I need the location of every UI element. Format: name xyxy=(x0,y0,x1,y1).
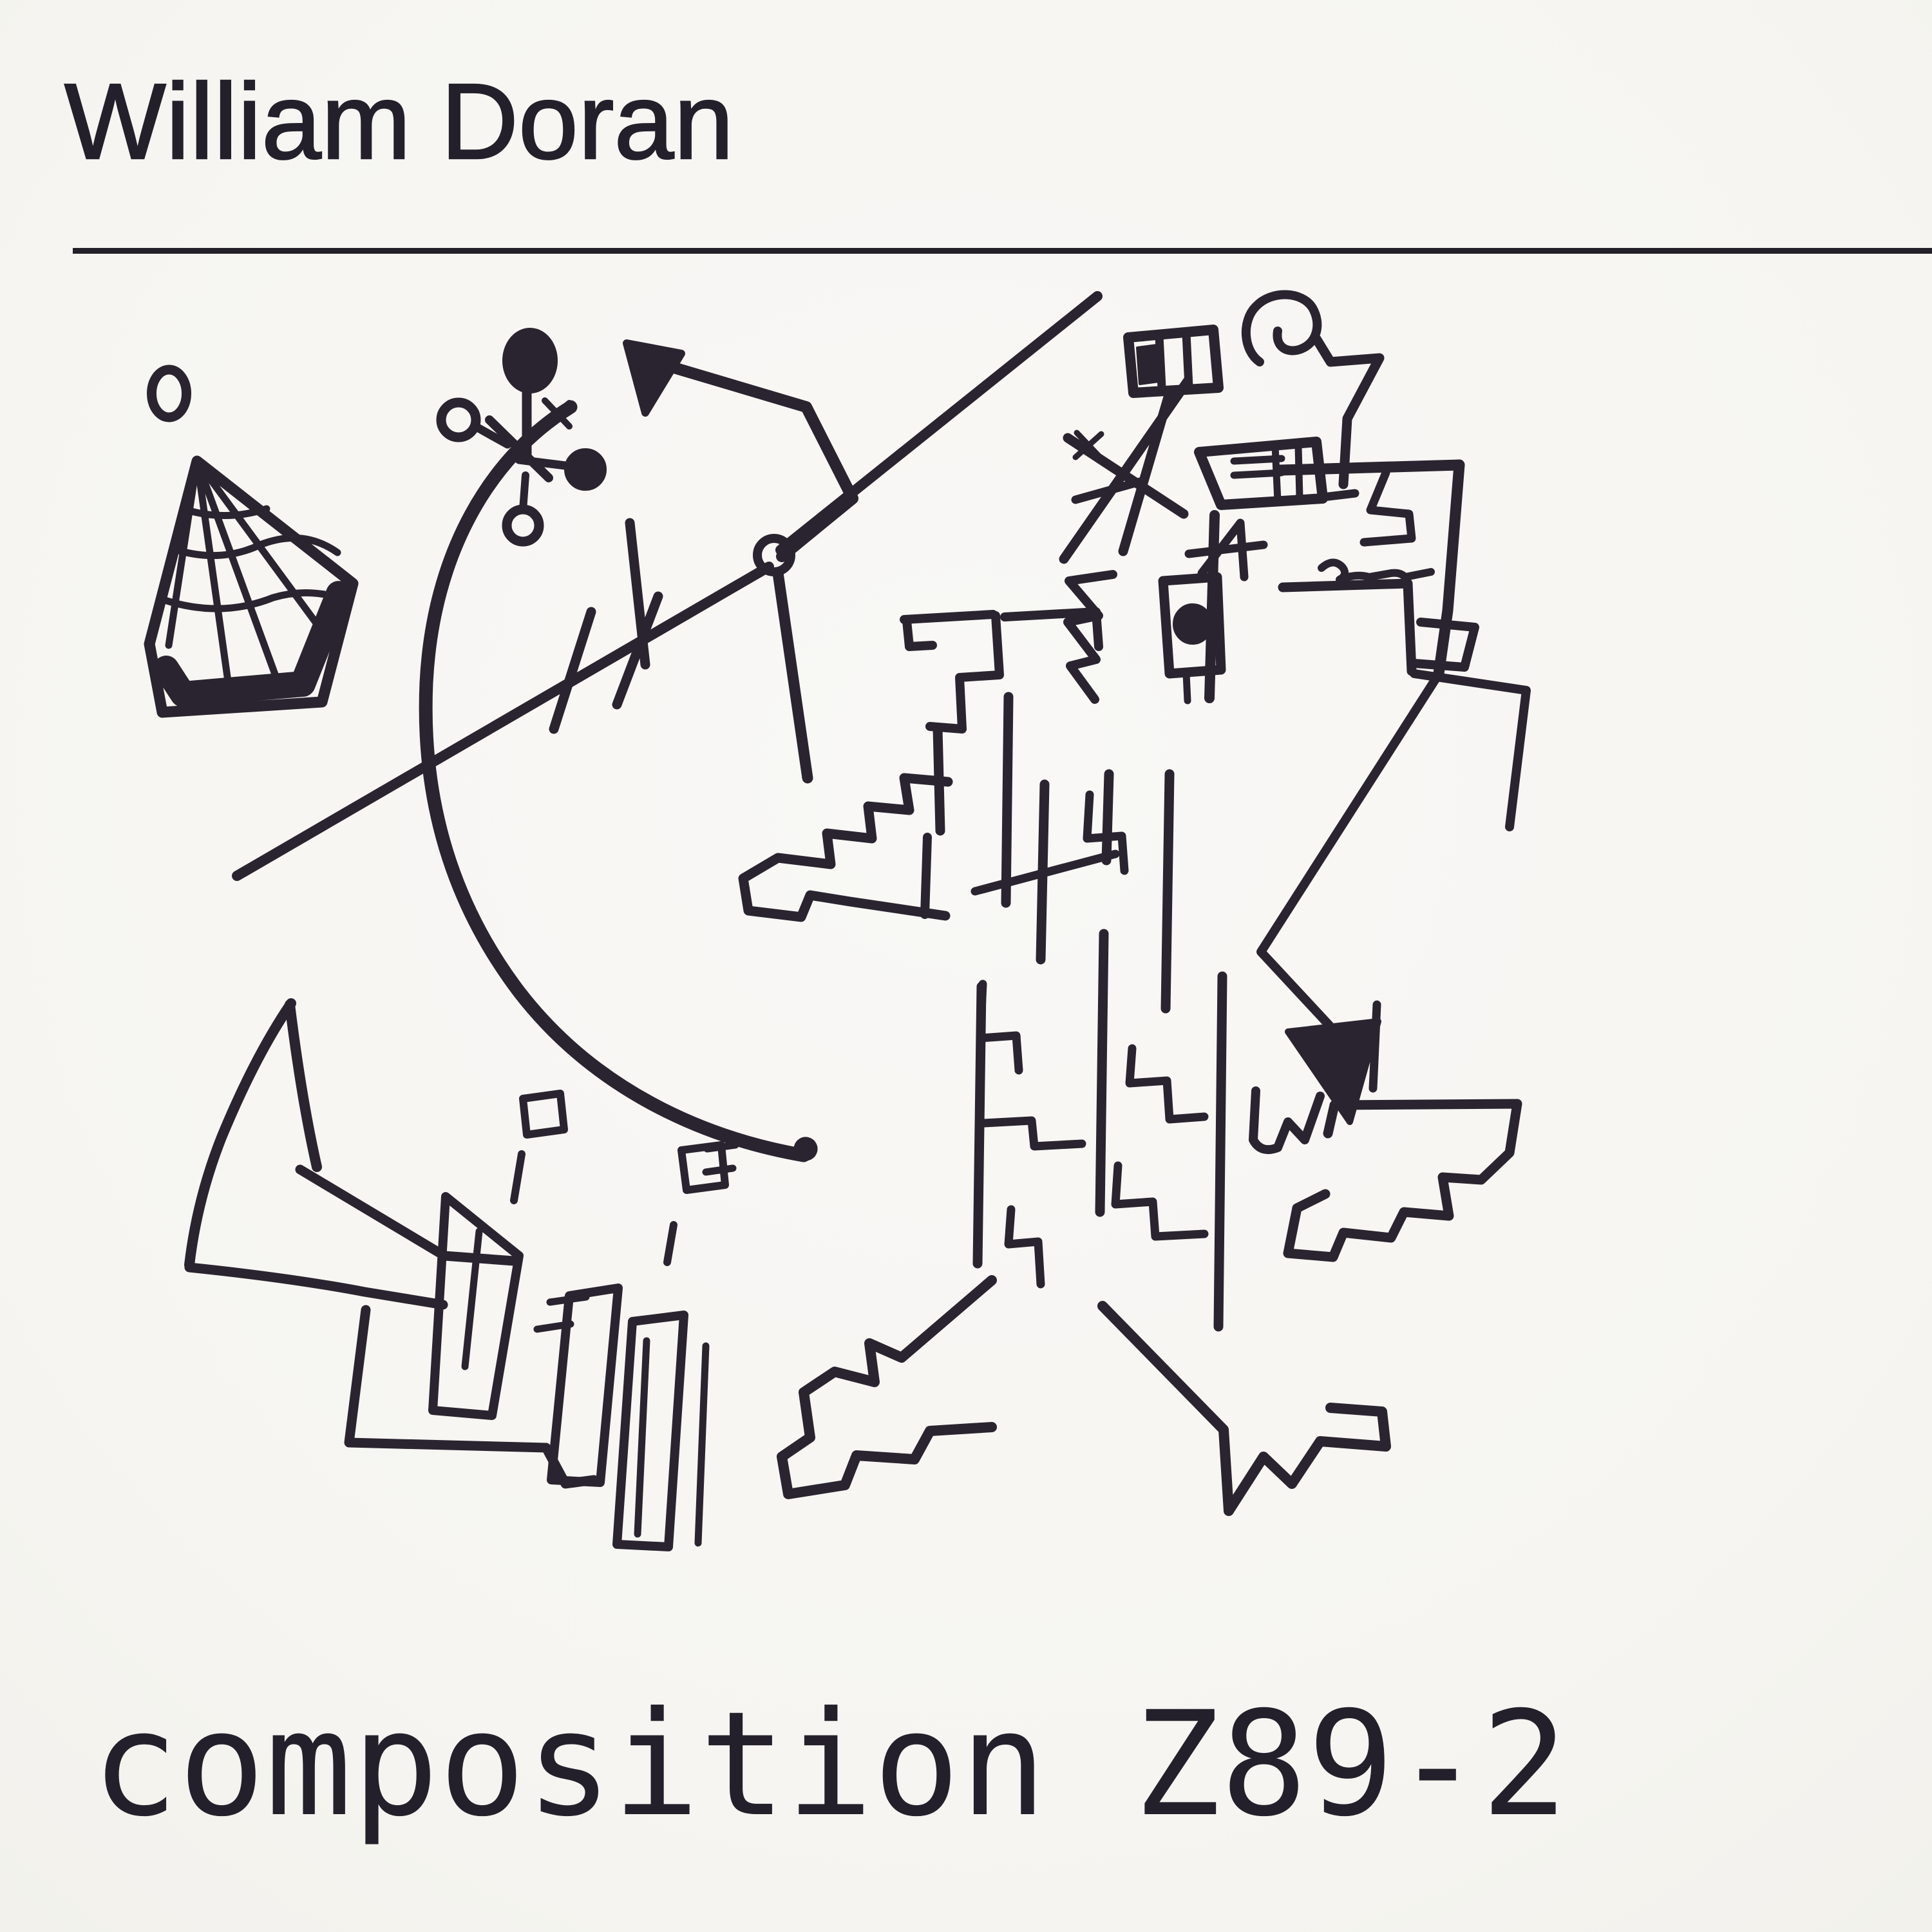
ink-stroke-93 xyxy=(465,1231,479,1367)
ink-stroke-8 xyxy=(165,592,343,609)
ink-stroke-40 xyxy=(1246,294,1317,362)
ink-stroke-80 xyxy=(1130,1048,1204,1119)
ink-stroke-69 xyxy=(938,729,940,831)
ink-stroke-88 xyxy=(189,1003,291,1265)
ink-stroke-102 xyxy=(537,1297,586,1329)
ink-stroke-51 xyxy=(1186,674,1188,701)
ink-stroke-91 xyxy=(300,1170,514,1261)
ink-stroke-25 xyxy=(781,296,1097,550)
ink-stroke-9 xyxy=(187,509,267,516)
ink-stroke-87 xyxy=(1229,1408,1386,1511)
ink-stroke-59 xyxy=(1414,674,1526,827)
ink-stroke-18 xyxy=(507,509,539,542)
ink-stroke-19 xyxy=(523,475,526,510)
ink-stroke-10 xyxy=(507,332,553,389)
ink-stroke-50 xyxy=(1175,605,1211,643)
ink-stroke-79 xyxy=(980,984,1019,1070)
ink-stroke-83 xyxy=(1009,1209,1041,1284)
ink-stroke-62 xyxy=(1373,1005,1377,1088)
ink-stroke-85 xyxy=(782,1280,992,1494)
ink-stroke-81 xyxy=(1115,1166,1204,1236)
ink-stroke-74 xyxy=(1166,774,1170,1009)
ink-stroke-24 xyxy=(237,567,769,876)
ink-stroke-34 xyxy=(1137,345,1159,384)
ink-stroke-90 xyxy=(189,1267,443,1305)
ink-stroke-98 xyxy=(523,1094,564,1135)
ink-stroke-52 xyxy=(1068,574,1113,699)
ink-stroke-27 xyxy=(795,1139,815,1159)
ink-stroke-67 xyxy=(904,614,993,647)
abstract-ink-drawing xyxy=(0,0,1932,1932)
ink-stroke-56 xyxy=(1283,583,1412,671)
ink-stroke-60 xyxy=(1261,676,1437,1025)
ink-stroke-23 xyxy=(778,573,808,778)
ink-stroke-26 xyxy=(426,407,804,1155)
ink-stroke-71 xyxy=(1006,697,1009,903)
ink-stroke-99 xyxy=(514,1154,522,1200)
ink-stroke-21 xyxy=(676,368,853,556)
album-cover-page: William Doran composition Z89-2 xyxy=(0,0,1932,1932)
ink-stroke-68 xyxy=(930,616,999,729)
ink-stroke-89 xyxy=(290,1005,317,1167)
ink-stroke-82 xyxy=(984,1121,1082,1146)
ink-stroke-20 xyxy=(627,343,681,413)
ink-stroke-95 xyxy=(551,1288,618,1482)
ink-stroke-101 xyxy=(667,1225,674,1262)
composition-title: composition Z89-2 xyxy=(91,1692,1568,1837)
ink-stroke-48 xyxy=(1189,545,1264,554)
ink-stroke-45 xyxy=(1323,493,1355,497)
ink-stroke-57 xyxy=(1321,562,1431,580)
ink-stroke-77 xyxy=(1218,976,1222,1327)
ink-stroke-65 xyxy=(743,778,948,917)
ink-stroke-17 xyxy=(519,460,571,466)
ink-stroke-76 xyxy=(1100,934,1104,1212)
ink-stroke-66 xyxy=(925,837,927,914)
ink-stroke-0 xyxy=(151,370,186,417)
ink-stroke-86 xyxy=(1103,1306,1229,1511)
ink-stroke-14 xyxy=(441,402,476,437)
ink-stroke-54 xyxy=(1439,465,1459,674)
ink-stroke-64 xyxy=(1288,1104,1517,1257)
ink-stroke-96 xyxy=(617,1315,684,1547)
ink-stroke-55 xyxy=(1364,473,1412,542)
ink-stroke-73 xyxy=(1106,774,1109,860)
ink-stroke-53 xyxy=(1280,465,1459,470)
ink-stroke-63 xyxy=(1253,1091,1320,1150)
